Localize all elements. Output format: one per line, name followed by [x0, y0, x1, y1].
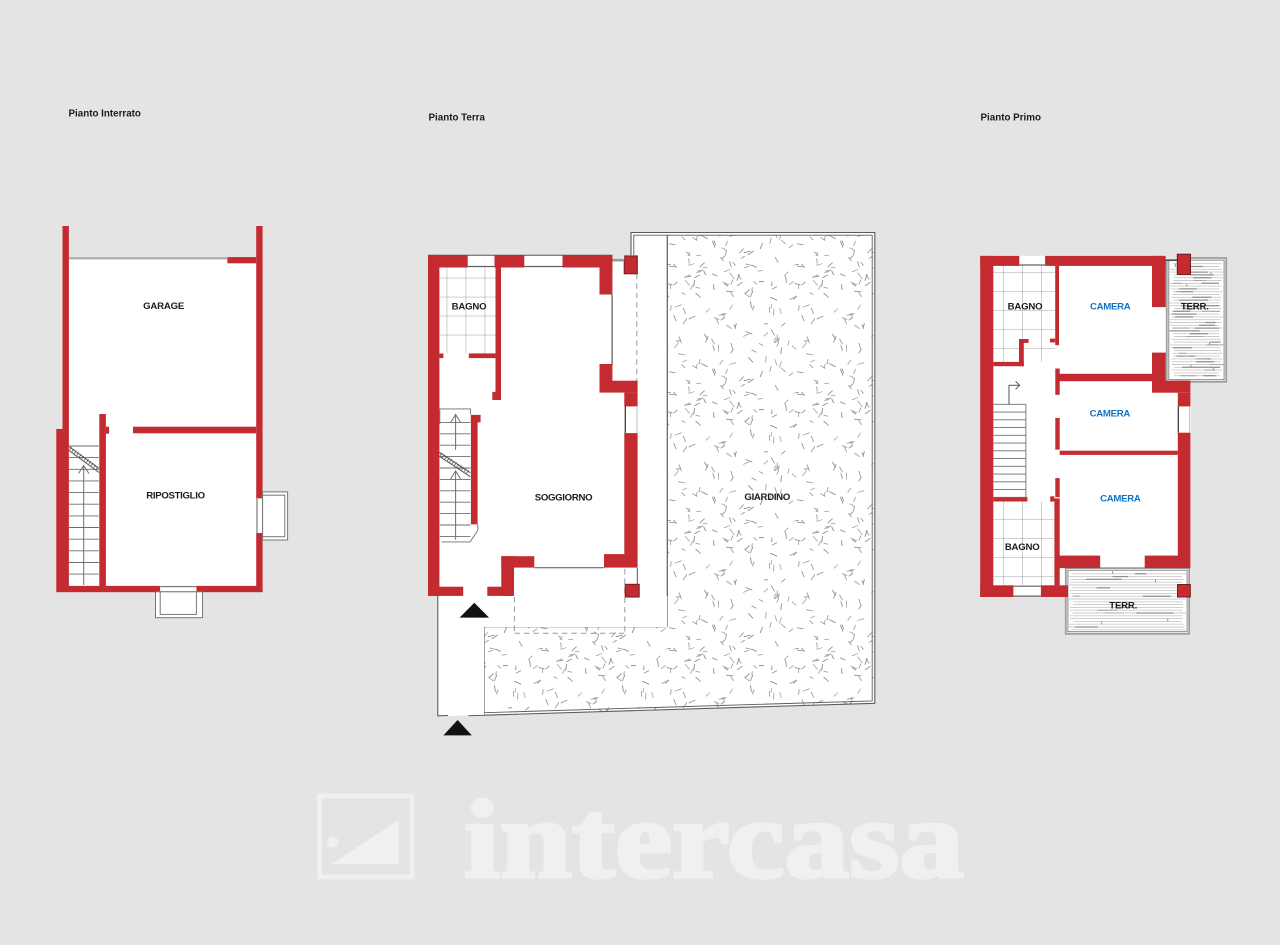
svg-text:TERR.: TERR.: [1181, 301, 1209, 312]
svg-text:CAMERA: CAMERA: [1100, 494, 1141, 505]
svg-text:GIARDINO: GIARDINO: [744, 492, 790, 503]
svg-text:Pianto Interrato: Pianto Interrato: [69, 109, 141, 120]
svg-text:BAGNO: BAGNO: [452, 301, 487, 312]
svg-text:CAMERA: CAMERA: [1090, 302, 1131, 313]
svg-text:TERR.: TERR.: [1109, 601, 1137, 612]
svg-text:Pianto Terra: Pianto Terra: [429, 113, 486, 124]
svg-text:BAGNO: BAGNO: [1008, 302, 1043, 313]
svg-text:GARAGE: GARAGE: [143, 301, 185, 312]
svg-text:RIPOSTIGLIO: RIPOSTIGLIO: [146, 491, 205, 502]
svg-text:Pianto Primo: Pianto Primo: [981, 113, 1041, 124]
svg-text:BAGNO: BAGNO: [1005, 542, 1040, 553]
svg-text:intercasa: intercasa: [464, 778, 964, 902]
svg-text:SOGGIORNO: SOGGIORNO: [535, 493, 593, 504]
svg-text:CAMERA: CAMERA: [1090, 409, 1131, 420]
